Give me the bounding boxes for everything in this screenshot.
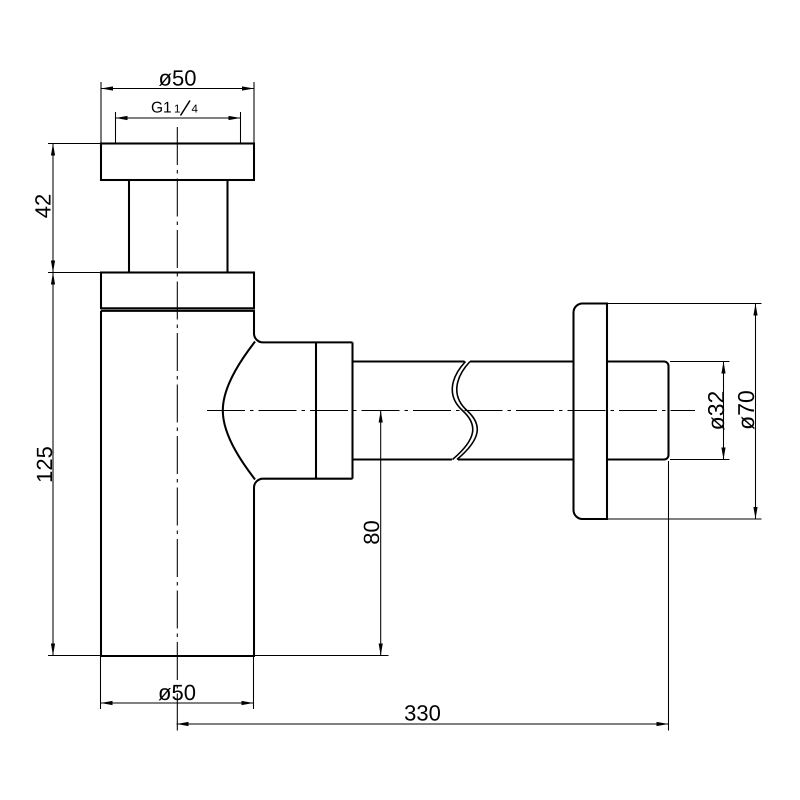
svg-text:42: 42 — [31, 194, 56, 218]
svg-text:4: 4 — [192, 104, 199, 116]
svg-text:1: 1 — [174, 104, 180, 116]
svg-text:ø50: ø50 — [158, 680, 196, 705]
svg-text:80: 80 — [359, 520, 384, 544]
svg-text:ø50: ø50 — [159, 66, 197, 91]
svg-text:125: 125 — [32, 446, 57, 483]
svg-text:ø32: ø32 — [703, 391, 729, 431]
svg-text:ø70: ø70 — [733, 390, 759, 430]
svg-text:G1: G1 — [151, 100, 172, 117]
svg-text:330: 330 — [404, 701, 441, 726]
